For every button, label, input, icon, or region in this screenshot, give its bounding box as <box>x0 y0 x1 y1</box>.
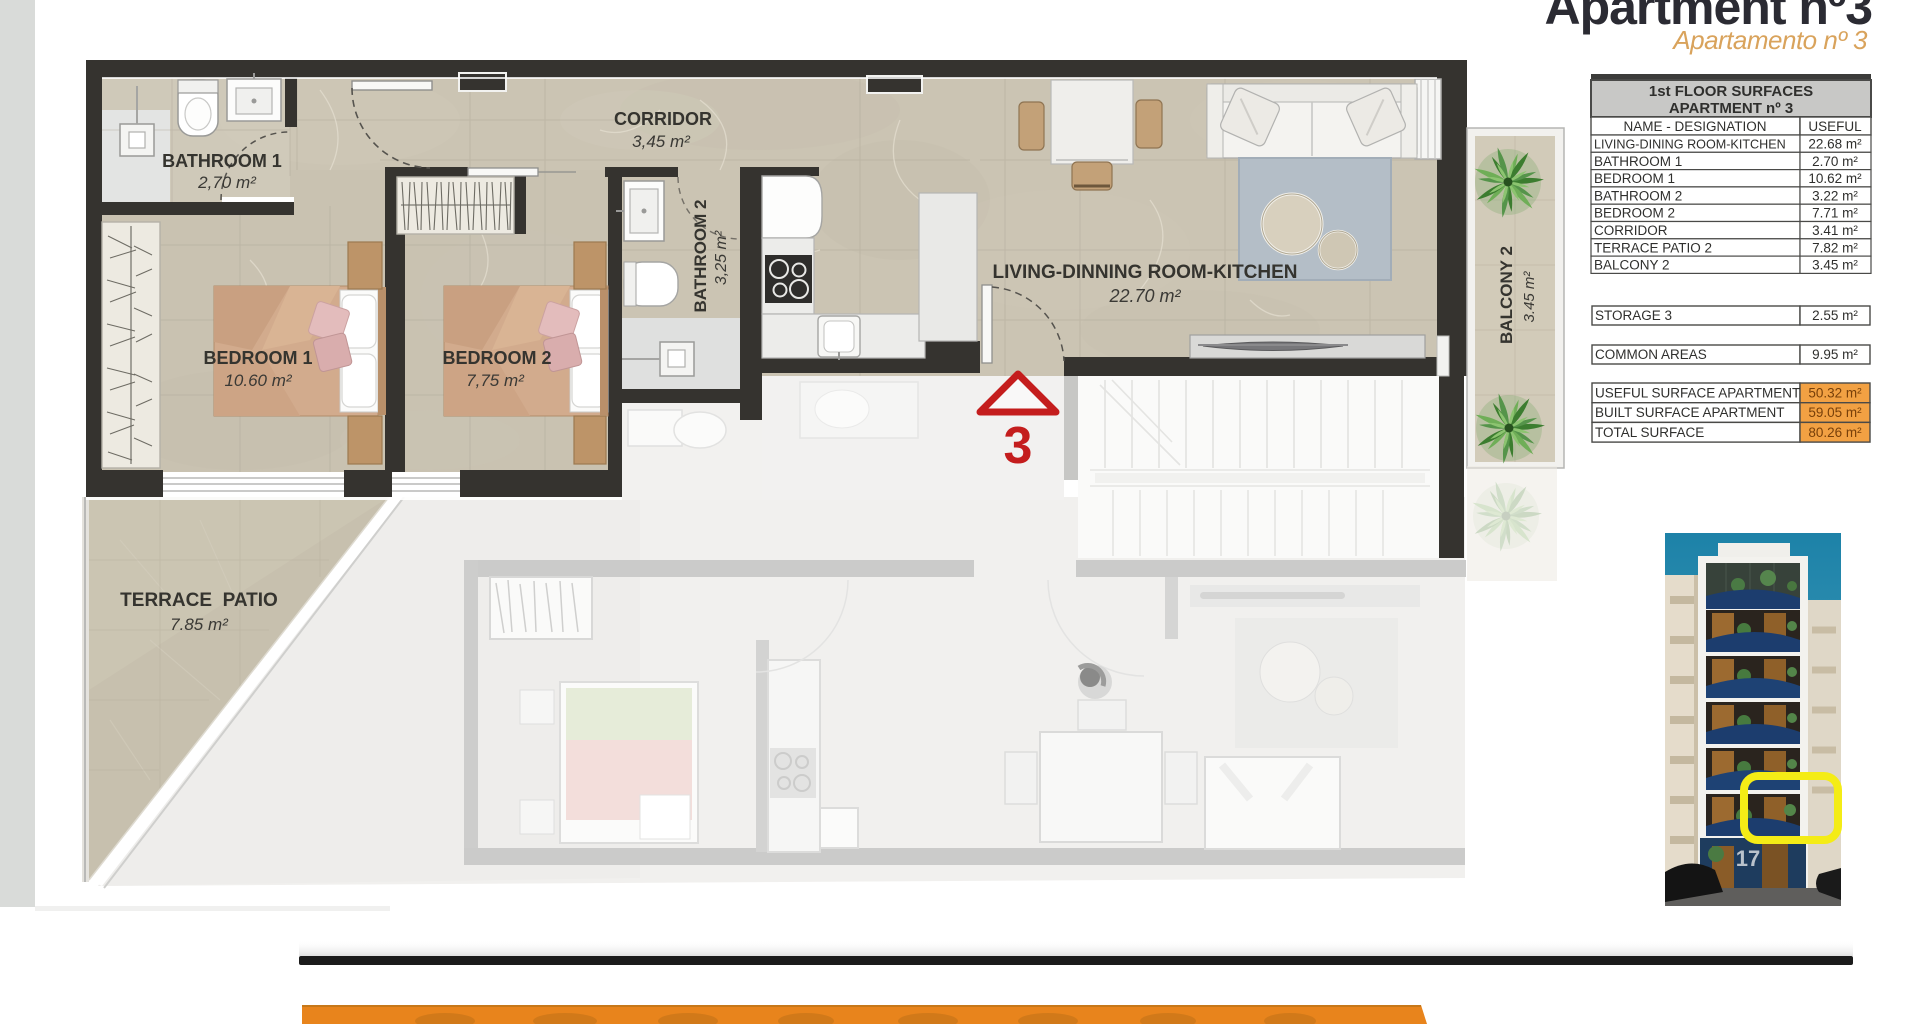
svg-text:BUILT SURFACE APARTMENT: BUILT SURFACE APARTMENT <box>1595 405 1785 420</box>
svg-text:TERRACE PATIO: TERRACE PATIO <box>120 590 278 611</box>
svg-text:10.60 m²: 10.60 m² <box>224 371 292 390</box>
svg-text:BEDROOM 1: BEDROOM 1 <box>1594 171 1675 186</box>
svg-text:3.22 m²: 3.22 m² <box>1812 188 1858 203</box>
svg-text:17: 17 <box>1736 846 1760 871</box>
svg-text:USEFUL SURFACE APARTMENT: USEFUL SURFACE APARTMENT <box>1595 386 1800 401</box>
svg-text:APARTMENT nº 3: APARTMENT nº 3 <box>1669 100 1793 117</box>
svg-text:LIVING-DINING ROOM-KITCHEN: LIVING-DINING ROOM-KITCHEN <box>1594 138 1786 152</box>
svg-text:TERRACE PATIO 2: TERRACE PATIO 2 <box>1594 240 1712 255</box>
svg-text:2,70 m²: 2,70 m² <box>197 173 257 192</box>
svg-text:3: 3 <box>1004 417 1033 475</box>
svg-text:LIVING-DINNING ROOM-KITCHEN: LIVING-DINNING ROOM-KITCHEN <box>992 262 1297 283</box>
svg-text:BEDROOM 1: BEDROOM 1 <box>203 348 312 368</box>
svg-text:BALCONY 2: BALCONY 2 <box>1594 258 1670 273</box>
svg-text:BEDROOM 2: BEDROOM 2 <box>1594 206 1675 221</box>
svg-text:2.70 m²: 2.70 m² <box>1812 154 1858 169</box>
svg-text:2.55 m²: 2.55 m² <box>1812 308 1858 323</box>
svg-text:TOTAL SURFACE: TOTAL SURFACE <box>1595 425 1704 440</box>
svg-text:3,45 m²: 3,45 m² <box>632 132 691 151</box>
svg-text:COMMON AREAS: COMMON AREAS <box>1595 347 1707 362</box>
svg-text:BATHROOM 1: BATHROOM 1 <box>162 151 282 171</box>
svg-text:59.05 m²: 59.05 m² <box>1808 405 1862 420</box>
svg-text:BEDROOM 2: BEDROOM 2 <box>442 348 551 368</box>
svg-text:10.62 m²: 10.62 m² <box>1808 171 1862 186</box>
svg-text:22.70 m²: 22.70 m² <box>1108 286 1181 306</box>
svg-text:9.95 m²: 9.95 m² <box>1812 347 1858 362</box>
svg-text:3.45 m²: 3.45 m² <box>1812 258 1858 273</box>
svg-text:USEFUL: USEFUL <box>1808 119 1862 134</box>
svg-text:NAME - DESIGNATION: NAME - DESIGNATION <box>1623 119 1766 134</box>
svg-text:3,25 m²: 3,25 m² <box>713 230 730 285</box>
svg-text:3.41 m²: 3.41 m² <box>1812 223 1858 238</box>
svg-text:3.45 m²: 3.45 m² <box>1521 271 1538 323</box>
svg-text:80.26 m²: 80.26 m² <box>1808 425 1862 440</box>
svg-text:7.71 m²: 7.71 m² <box>1812 206 1858 221</box>
svg-text:STORAGE 3: STORAGE 3 <box>1595 308 1672 323</box>
svg-text:1st FLOOR SURFACES: 1st FLOOR SURFACES <box>1649 83 1813 100</box>
svg-text:7,75 m²: 7,75 m² <box>466 371 525 390</box>
svg-text:Apartamento nº 3: Apartamento nº 3 <box>1671 25 1868 55</box>
svg-text:7.82 m²: 7.82 m² <box>1812 240 1858 255</box>
svg-text:CORRIDOR: CORRIDOR <box>614 109 712 129</box>
svg-text:50.32 m²: 50.32 m² <box>1808 386 1862 401</box>
svg-text:BATHROOM 1: BATHROOM 1 <box>1594 154 1682 169</box>
svg-text:BATHROOM 2: BATHROOM 2 <box>691 199 710 312</box>
svg-text:7.85 m²: 7.85 m² <box>170 615 229 634</box>
svg-text:BATHROOM 2: BATHROOM 2 <box>1594 188 1682 203</box>
svg-text:CORRIDOR: CORRIDOR <box>1594 223 1668 238</box>
svg-text:BALCONY 2: BALCONY 2 <box>1497 246 1516 344</box>
svg-text:22.68 m²: 22.68 m² <box>1808 137 1862 152</box>
